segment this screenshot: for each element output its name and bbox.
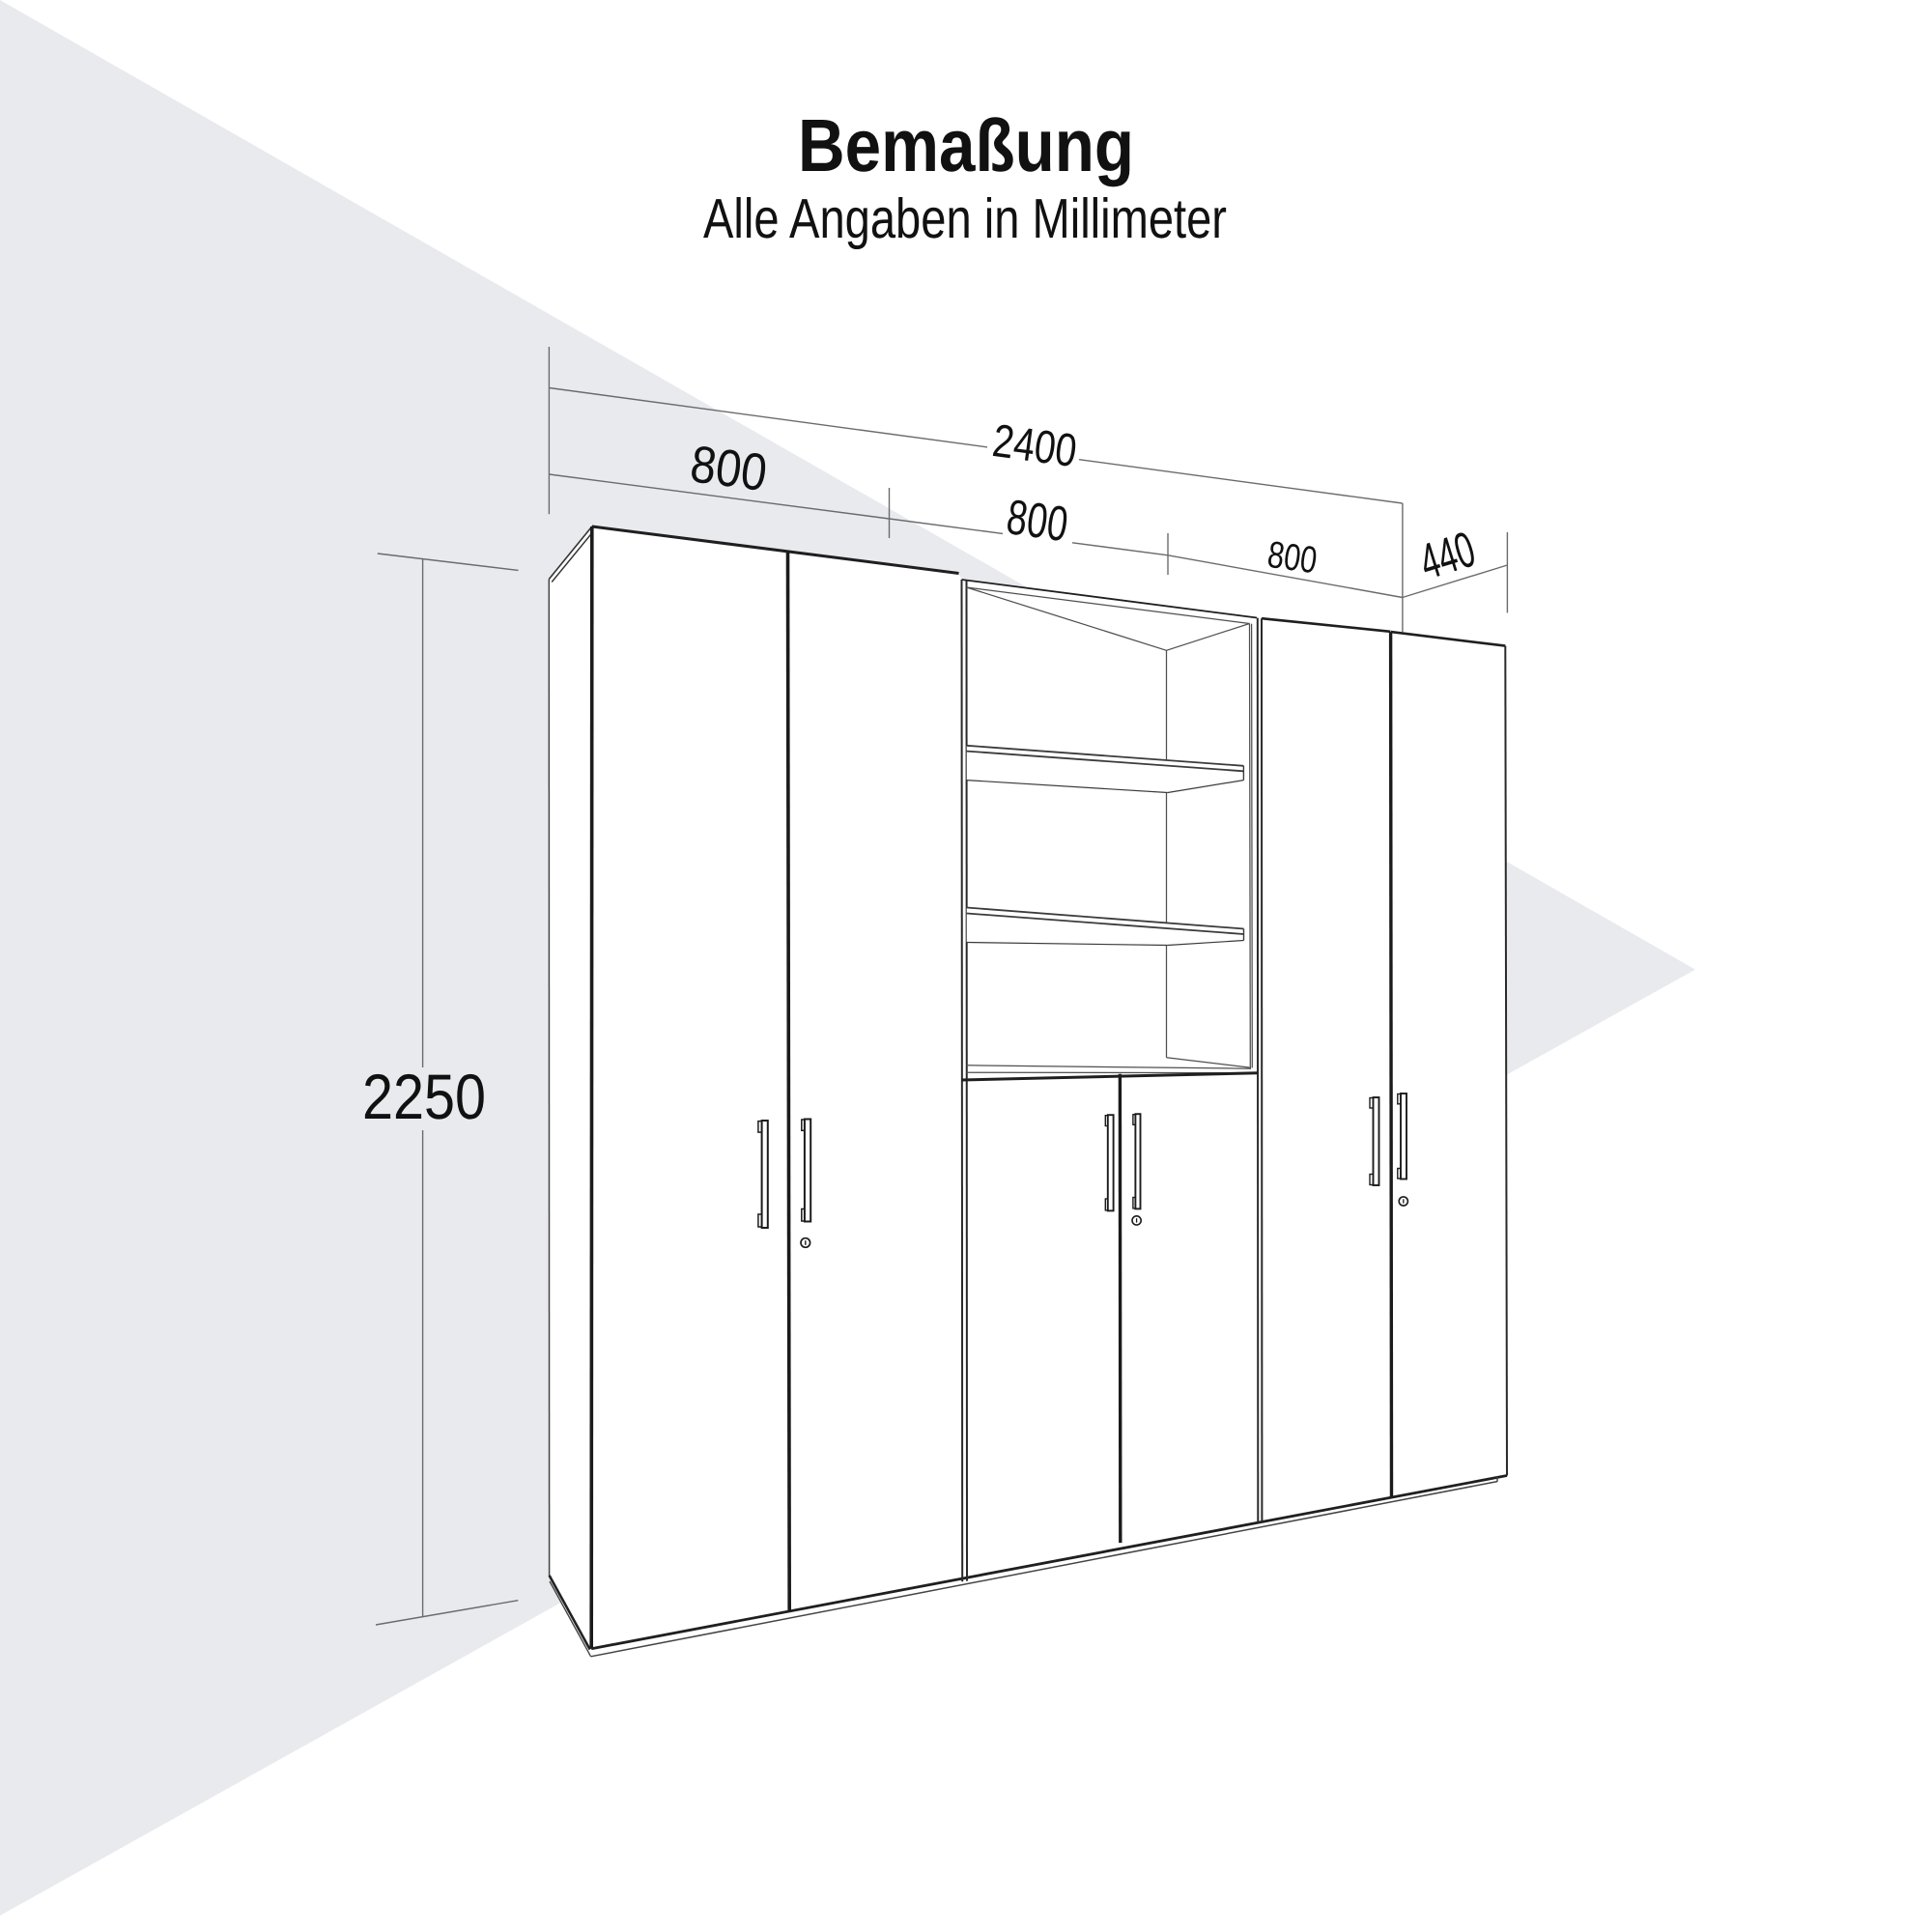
svg-text:800: 800	[687, 435, 770, 502]
svg-text:Bemaßung: Bemaßung	[798, 104, 1134, 187]
svg-text:440: 440	[1413, 522, 1482, 591]
svg-text:2250: 2250	[362, 1061, 486, 1132]
svg-text:Alle Angaben in Millimeter: Alle Angaben in Millimeter	[703, 187, 1227, 250]
svg-text:800: 800	[1264, 534, 1319, 582]
svg-text:2400: 2400	[989, 415, 1079, 477]
svg-text:800: 800	[1004, 489, 1071, 552]
